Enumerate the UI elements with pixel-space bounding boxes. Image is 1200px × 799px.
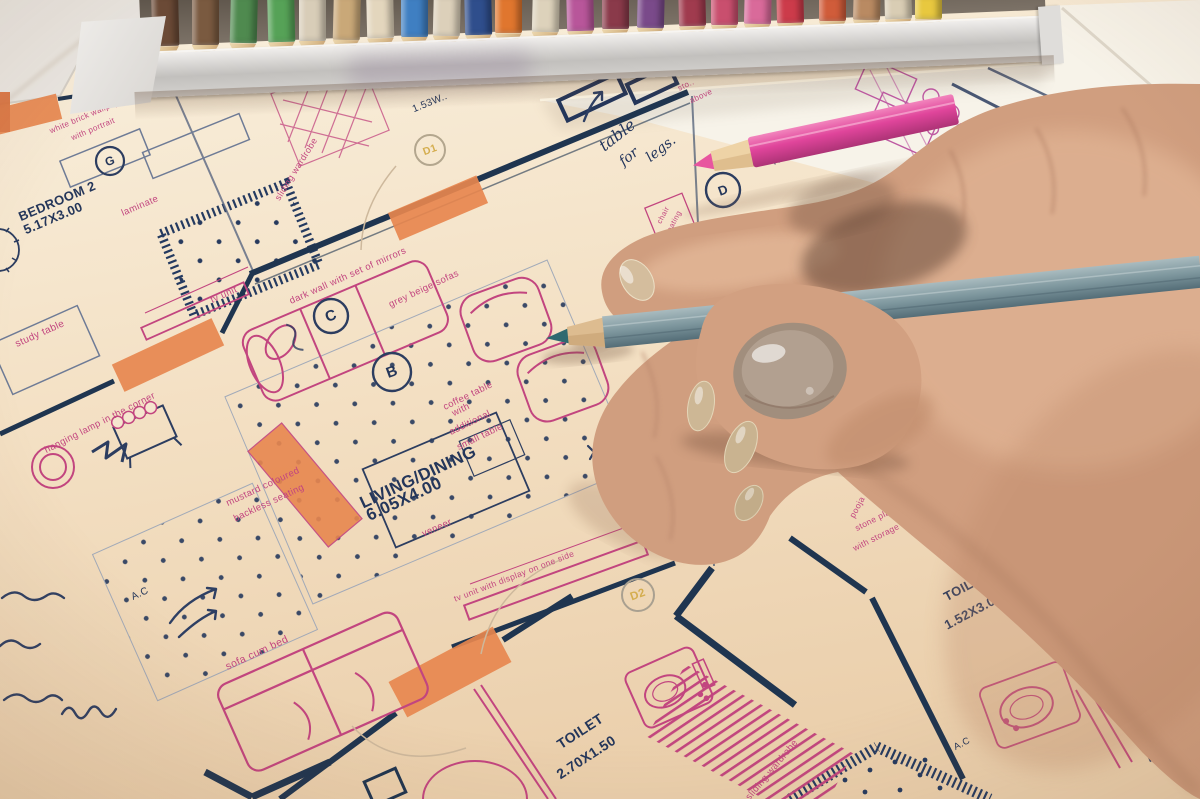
photo-of-floorplan-scene: bottle unit bbox=[0, 0, 1200, 799]
pencil-box bbox=[0, 0, 1200, 170]
